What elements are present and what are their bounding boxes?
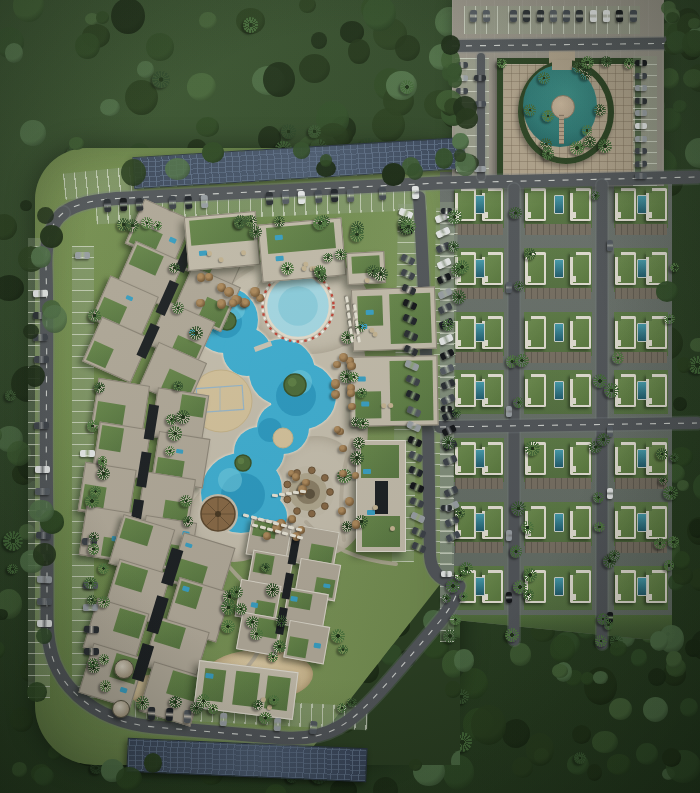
car: [440, 394, 455, 406]
palm-tree: [668, 536, 680, 548]
palm-tree: [357, 388, 367, 398]
car: [403, 329, 418, 341]
car: [34, 422, 49, 429]
palapa-umbrella: [331, 390, 340, 399]
car: [441, 424, 456, 436]
palapa-umbrella: [352, 520, 361, 529]
tree: [20, 200, 32, 211]
car: [405, 390, 420, 402]
palm-tree: [523, 589, 534, 600]
palm-tree: [173, 381, 183, 391]
tree: [441, 35, 460, 55]
palapa-umbrella: [205, 273, 213, 281]
palm-tree: [269, 695, 279, 705]
palm-tree: [314, 267, 324, 277]
tree: [581, 672, 593, 685]
palm-tree: [460, 562, 474, 576]
car: [75, 252, 90, 259]
palm-tree: [497, 59, 507, 69]
tree: [682, 30, 700, 57]
palm-tree: [168, 426, 183, 441]
palm-tree: [273, 640, 287, 654]
palm-tree: [515, 354, 529, 368]
tree: [648, 668, 666, 686]
car: [445, 531, 460, 543]
car: [536, 10, 543, 22]
car: [309, 721, 317, 735]
palm-tree: [582, 125, 592, 135]
palm-tree: [98, 596, 110, 608]
palm-tree: [401, 219, 416, 234]
palm-tree: [525, 441, 540, 456]
car: [406, 405, 421, 416]
car: [441, 406, 452, 412]
palm-tree: [459, 592, 468, 601]
car: [408, 451, 423, 463]
sun-lounger: [282, 531, 289, 535]
car: [404, 344, 419, 356]
tree: [42, 305, 67, 333]
palm-tree: [542, 147, 555, 160]
palm-tree: [609, 550, 619, 560]
car: [439, 364, 454, 375]
car: [401, 283, 416, 295]
palm-tree: [141, 217, 153, 229]
palm-tree: [597, 433, 610, 446]
palm-tree: [347, 698, 356, 707]
sun-lounger: [265, 519, 272, 523]
palm-tree: [521, 521, 534, 534]
landscape-layer: [0, 0, 700, 793]
palm-tree: [313, 216, 327, 230]
sun-lounger: [243, 513, 250, 517]
palapa-umbrella: [197, 273, 205, 281]
palapa-umbrella: [339, 353, 348, 362]
sun-lounger: [252, 523, 259, 527]
car: [402, 299, 417, 310]
car: [83, 626, 98, 633]
car: [442, 455, 457, 466]
palm-tree: [570, 141, 584, 155]
car: [635, 173, 647, 179]
sun-lounger: [279, 493, 285, 496]
car: [607, 240, 613, 251]
car: [635, 98, 647, 104]
palm-tree: [455, 260, 469, 274]
palm-tree: [208, 704, 217, 713]
palapa-umbrella: [217, 299, 227, 309]
sun-lounger: [293, 491, 299, 494]
palm-tree: [505, 628, 519, 642]
car: [274, 718, 282, 731]
palm-tree: [509, 207, 521, 219]
palm-tree: [268, 652, 278, 662]
palm-tree: [165, 446, 175, 456]
sun-lounger: [267, 527, 274, 531]
sun-lounger: [286, 492, 292, 495]
palm-tree: [169, 696, 181, 708]
palm-tree: [601, 56, 611, 66]
tree: [610, 641, 628, 656]
sun-lounger: [353, 304, 357, 310]
palm-tree: [189, 326, 203, 340]
palapa-umbrella: [196, 299, 204, 307]
palm-tree: [446, 579, 460, 593]
palm-tree: [624, 58, 635, 69]
palm-tree: [511, 501, 526, 516]
palm-tree: [595, 635, 607, 647]
car: [550, 10, 557, 22]
car: [590, 10, 597, 22]
car: [36, 576, 51, 583]
sun-lounger: [289, 533, 296, 537]
palm-tree: [249, 226, 261, 238]
car: [84, 648, 99, 655]
palm-tree: [373, 267, 387, 281]
palm-tree: [253, 700, 263, 710]
palm-tree: [88, 658, 98, 668]
sun-lounger: [346, 304, 350, 310]
car: [282, 191, 290, 204]
car: [510, 10, 517, 22]
palm-tree: [594, 522, 605, 533]
car: [506, 282, 512, 293]
car: [37, 620, 52, 627]
palm-tree: [88, 309, 101, 322]
car: [347, 188, 355, 201]
palm-tree: [276, 615, 287, 626]
palm-tree: [524, 248, 536, 260]
palm-tree: [670, 453, 679, 462]
tree: [656, 281, 678, 302]
palm-tree: [97, 467, 110, 480]
masterplan-canvas: [0, 0, 700, 793]
tree: [448, 74, 462, 88]
car: [474, 75, 486, 81]
tree: [40, 225, 63, 248]
palapa-umbrella: [345, 497, 354, 506]
sun-lounger: [295, 527, 302, 531]
tree: [33, 543, 56, 566]
car: [168, 196, 176, 209]
car: [410, 511, 425, 523]
sun-lounger: [348, 320, 352, 326]
car: [37, 598, 52, 605]
palm-tree: [612, 352, 624, 364]
sun-lounger: [258, 517, 265, 521]
car: [410, 496, 425, 507]
tree: [31, 246, 52, 268]
palm-tree: [246, 616, 259, 629]
tree: [121, 159, 146, 186]
palm-tree: [126, 219, 139, 232]
sun-lounger: [259, 525, 266, 529]
palm-tree: [99, 654, 109, 664]
palm-tree: [230, 586, 242, 598]
palm-tree: [455, 508, 465, 518]
palm-tree: [274, 216, 285, 227]
sun-lounger: [288, 525, 295, 529]
tree: [650, 631, 668, 651]
tree: [552, 664, 567, 678]
tree: [690, 338, 700, 353]
tree: [693, 473, 700, 502]
palm-tree: [654, 538, 666, 550]
tree: [144, 753, 162, 773]
car: [401, 268, 416, 280]
car: [405, 375, 420, 387]
car: [437, 302, 452, 314]
palm-tree: [331, 629, 345, 643]
car: [635, 148, 647, 154]
tree: [25, 365, 45, 387]
car: [506, 530, 512, 541]
car: [407, 420, 422, 432]
car: [635, 85, 647, 91]
tree: [631, 649, 647, 666]
palm-tree: [510, 545, 522, 557]
tree: [165, 158, 190, 180]
tree: [69, 137, 84, 149]
tree: [689, 519, 700, 538]
car: [400, 253, 415, 265]
tree: [202, 142, 224, 163]
palm-tree: [180, 495, 191, 506]
tree: [116, 767, 142, 790]
palm-tree: [513, 397, 524, 408]
car: [443, 485, 458, 497]
palm-tree: [442, 436, 455, 449]
sun-lounger: [300, 490, 306, 493]
palm-tree: [542, 110, 554, 122]
palm-tree: [172, 302, 184, 314]
palm-tree: [337, 703, 347, 713]
palm-tree: [573, 62, 584, 73]
palm-tree: [281, 262, 294, 275]
car: [166, 708, 174, 721]
palm-tree: [442, 594, 452, 604]
palm-tree: [221, 600, 236, 615]
palm-tree: [176, 410, 190, 424]
car: [136, 197, 144, 211]
car: [408, 466, 423, 477]
palm-tree: [87, 420, 99, 432]
car: [35, 466, 50, 473]
sun-lounger: [272, 494, 278, 497]
tree: [677, 480, 689, 491]
palapa-umbrella: [347, 389, 355, 397]
tree: [435, 148, 453, 169]
palm-tree: [221, 620, 235, 634]
car: [201, 195, 209, 208]
car: [412, 186, 420, 199]
car: [441, 571, 452, 577]
palm-tree: [523, 568, 537, 582]
sun-lounger: [347, 312, 351, 318]
palm-tree: [323, 253, 333, 263]
car: [220, 713, 228, 726]
tree: [382, 163, 406, 186]
palm-tree: [234, 218, 244, 228]
palm-tree: [94, 382, 105, 393]
palm-tree: [261, 563, 270, 572]
tree: [688, 18, 700, 29]
palm-tree: [591, 191, 600, 200]
sun-lounger: [345, 296, 349, 302]
palm-tree: [100, 680, 112, 692]
palm-tree: [447, 210, 461, 224]
palapa-umbrella: [263, 532, 271, 540]
tree: [23, 324, 39, 339]
palapa-umbrella: [292, 473, 300, 481]
palm-tree: [335, 249, 346, 260]
car: [331, 189, 339, 202]
car: [506, 592, 512, 603]
car: [616, 10, 623, 22]
car: [79, 450, 94, 457]
palm-tree: [351, 417, 360, 426]
tree: [293, 142, 311, 158]
tree: [36, 628, 52, 645]
palapa-umbrella: [333, 361, 340, 368]
tree: [29, 500, 53, 522]
sun-lounger: [349, 328, 353, 334]
palm-tree: [89, 532, 99, 542]
tree: [27, 682, 47, 701]
palm-tree: [190, 702, 203, 715]
car: [32, 290, 47, 297]
car: [635, 135, 647, 141]
car: [635, 60, 647, 66]
car: [630, 10, 637, 22]
car: [120, 198, 128, 211]
tree: [407, 163, 423, 180]
palapa-umbrella: [339, 470, 347, 478]
palm-tree: [98, 563, 109, 574]
tree: [34, 767, 54, 786]
palm-tree: [452, 408, 461, 417]
tree: [593, 671, 608, 684]
car: [104, 199, 112, 212]
palm-tree: [656, 448, 668, 460]
tree: [452, 133, 469, 151]
car: [185, 195, 193, 208]
palm-tree: [664, 560, 674, 570]
palapa-umbrella: [339, 445, 346, 452]
sun-lounger: [250, 515, 257, 519]
tree: [456, 108, 478, 130]
car: [439, 348, 454, 360]
car: [435, 227, 450, 239]
tree: [550, 635, 575, 663]
car: [437, 287, 452, 299]
car: [635, 123, 647, 129]
palm-tree: [604, 383, 619, 398]
palm-tree: [663, 486, 678, 501]
palm-tree: [136, 696, 149, 709]
palapa-umbrella: [348, 403, 355, 410]
palm-tree: [443, 629, 457, 643]
car: [440, 379, 455, 390]
car: [409, 481, 424, 492]
sun-lounger: [357, 336, 361, 342]
car: [402, 314, 417, 326]
palm-tree: [84, 577, 96, 589]
palapa-umbrella: [331, 379, 340, 388]
tree: [454, 649, 475, 672]
car: [407, 435, 422, 447]
palapa-umbrella: [289, 516, 296, 523]
palapa-umbrella: [250, 287, 259, 296]
car: [148, 706, 155, 719]
sun-lounger: [274, 529, 281, 533]
car: [436, 272, 451, 283]
car: [483, 10, 490, 22]
palm-tree: [442, 319, 454, 331]
car: [470, 10, 477, 22]
car: [266, 192, 274, 205]
car: [298, 190, 305, 203]
car: [436, 257, 451, 269]
tree: [673, 397, 687, 411]
palm-tree: [598, 139, 612, 153]
car: [603, 10, 610, 22]
car: [635, 161, 647, 167]
palm-tree: [266, 583, 279, 596]
car: [635, 110, 647, 116]
car: [404, 359, 419, 371]
car: [33, 356, 48, 363]
tree: [607, 754, 631, 775]
car: [635, 73, 647, 79]
palapa-umbrella: [229, 299, 237, 307]
palm-tree: [98, 456, 107, 465]
palm-tree: [659, 476, 669, 486]
car: [607, 488, 613, 499]
car: [576, 10, 583, 22]
car: [314, 190, 322, 203]
tree: [37, 207, 54, 224]
tree: [674, 551, 690, 569]
palm-tree: [448, 241, 459, 252]
palm-tree: [235, 603, 247, 615]
car: [379, 187, 386, 200]
palm-tree: [88, 543, 100, 555]
car: [523, 10, 530, 22]
palm-tree: [153, 221, 163, 231]
palapa-umbrella: [338, 507, 347, 516]
palm-tree: [353, 437, 366, 450]
car: [441, 505, 452, 511]
palm-tree: [350, 227, 364, 241]
car: [411, 527, 426, 538]
car: [35, 488, 50, 495]
palm-tree: [452, 290, 466, 304]
palm-tree: [338, 645, 348, 655]
car: [506, 406, 512, 417]
palm-tree: [169, 263, 180, 274]
sun-lounger: [354, 312, 358, 318]
palm-tree: [85, 494, 99, 508]
palm-tree: [259, 712, 271, 724]
tree: [320, 154, 332, 167]
tree: [409, 759, 422, 771]
palm-tree: [450, 614, 460, 624]
palm-tree: [350, 451, 364, 465]
car: [411, 542, 426, 554]
palapa-umbrella: [352, 472, 359, 479]
palm-tree: [342, 521, 353, 532]
